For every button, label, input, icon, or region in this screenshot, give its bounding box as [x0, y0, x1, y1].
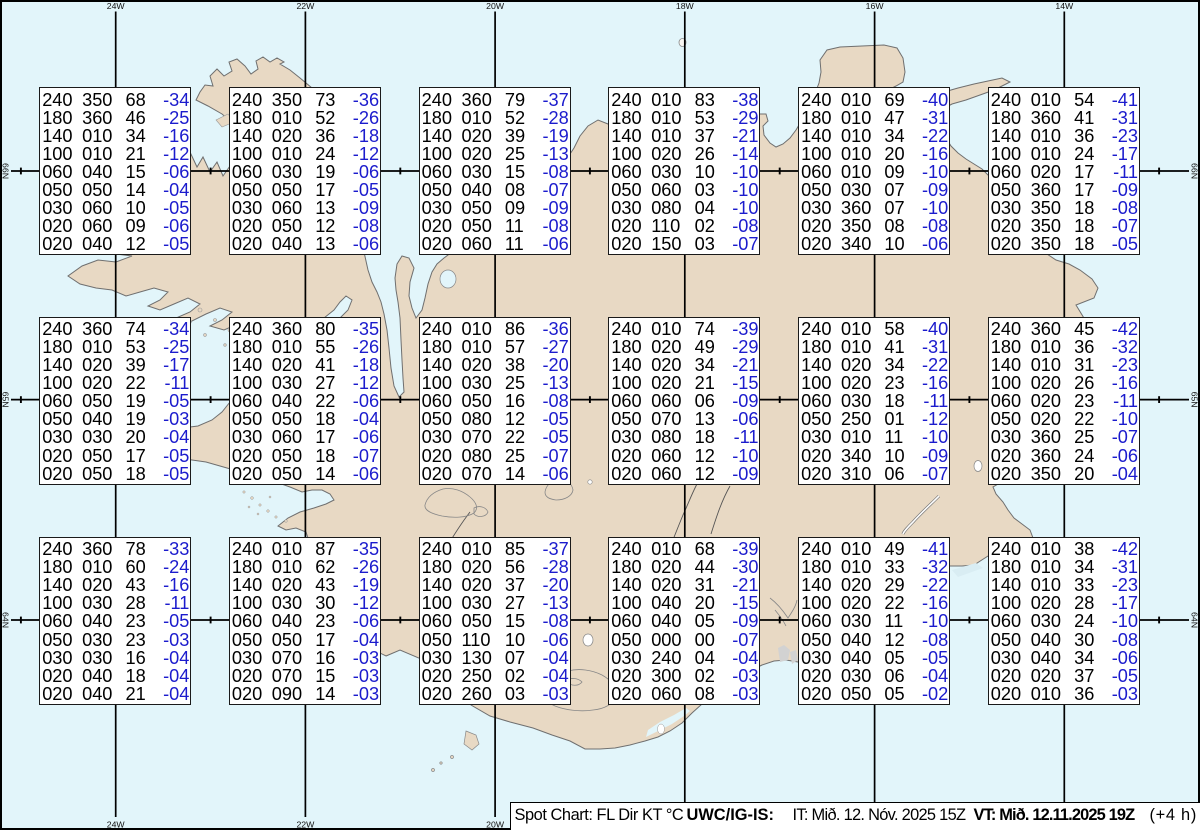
svg-text:65N: 65N — [1190, 392, 1200, 408]
svg-text:65N: 65N — [1, 392, 11, 408]
svg-text:64N: 64N — [1190, 612, 1200, 628]
svg-text:24W: 24W — [107, 1, 126, 11]
svg-text:66N: 66N — [1, 163, 11, 179]
svg-text:22W: 22W — [296, 1, 315, 11]
svg-text:64N: 64N — [1, 612, 11, 628]
svg-text:18W: 18W — [676, 1, 695, 11]
svg-text:22W: 22W — [296, 820, 315, 830]
svg-text:24W: 24W — [107, 820, 126, 830]
svg-text:16W: 16W — [866, 1, 885, 11]
svg-text:14W: 14W — [1055, 1, 1074, 11]
svg-text:20W: 20W — [486, 820, 505, 830]
svg-text:20W: 20W — [486, 1, 505, 11]
svg-text:66N: 66N — [1190, 163, 1200, 179]
